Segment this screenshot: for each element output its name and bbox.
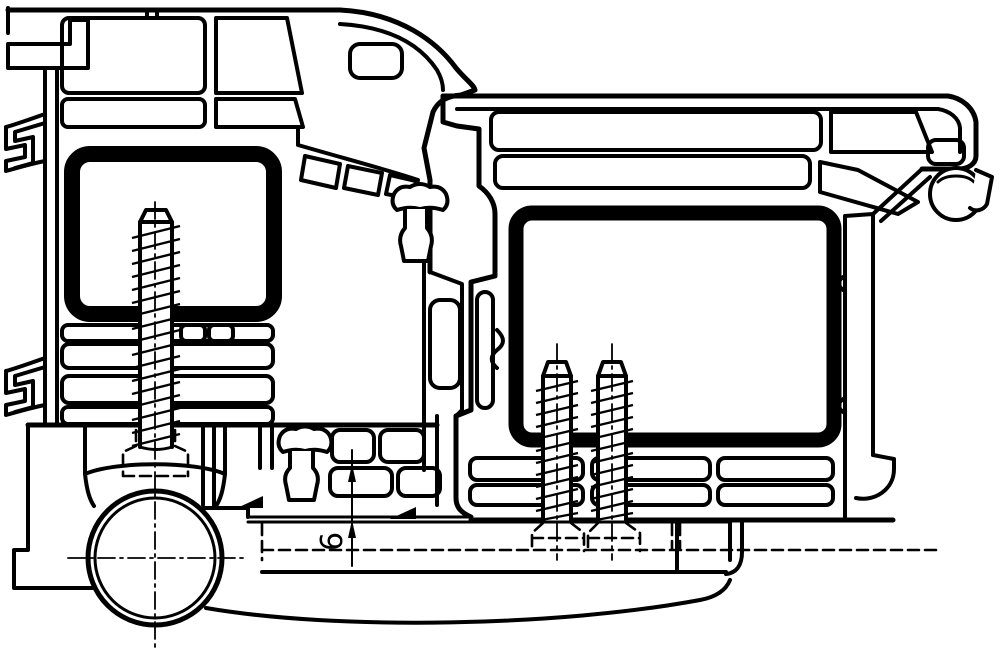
lower-gasket-stem: [285, 451, 318, 500]
frame-clip-lower: [6, 358, 45, 415]
frame-mount-chamber: [330, 468, 392, 496]
hinge-wing-arc: [206, 580, 730, 623]
sash-right-wall: [845, 214, 873, 455]
frame-foot: [14, 425, 92, 588]
screw-left-head: [140, 210, 172, 222]
frame-hook-slot: [350, 44, 402, 78]
sash-chamber: [491, 112, 821, 150]
frame-top-left-hook: [8, 20, 88, 68]
anchor-middle-outline: [532, 523, 584, 551]
frame-rebate-chamber: [430, 300, 460, 388]
center-gasket-stem: [400, 209, 432, 261]
sash-left-wall: [443, 96, 495, 517]
frame-slope-chamber: [344, 166, 382, 195]
dimension-label: 6: [315, 532, 350, 551]
knuckle-cup-side: [216, 425, 225, 506]
screw-left-tip: [140, 447, 172, 450]
frame-clip-upper: [6, 114, 45, 171]
frame-hook-inner-line: [340, 24, 443, 90]
hinge-plate-end: [726, 520, 742, 574]
hidden-lines: [123, 430, 938, 560]
steel-reinforcements: [72, 154, 834, 440]
frame-chamber-cell: [209, 325, 233, 341]
frame-left-wall: [45, 68, 57, 425]
frame-wedge: [237, 496, 263, 508]
frame-mount-chamber: [398, 468, 440, 496]
sash-tall-chamber: [477, 292, 493, 408]
sash-chamber: [495, 156, 810, 188]
frame-mount-chamber: [380, 430, 424, 462]
frame-slope-chamber: [301, 156, 340, 188]
sash-chamber: [718, 458, 833, 480]
center-gasket-cap: [393, 184, 448, 210]
lower-gasket-cap: [279, 427, 332, 453]
frame-chamber: [216, 99, 303, 127]
frame-mount-walls: [260, 425, 272, 468]
sash-outer-top: [443, 96, 976, 169]
frame-chamber: [216, 18, 302, 93]
sash-chamber: [718, 485, 833, 505]
screw-left: [132, 210, 180, 450]
anchor-right-outline: [588, 523, 640, 551]
sash-inner-top: [457, 109, 960, 152]
drawing-canvas: 6: [0, 0, 1000, 649]
sash-foot-hook: [845, 455, 894, 517]
knuckle-cup-side: [85, 425, 94, 506]
hinge-cross-section-drawing: 6: [0, 0, 1000, 649]
frame-chamber: [62, 99, 205, 127]
frame-chamber-cell: [181, 325, 205, 341]
sash-chamber: [831, 112, 932, 152]
